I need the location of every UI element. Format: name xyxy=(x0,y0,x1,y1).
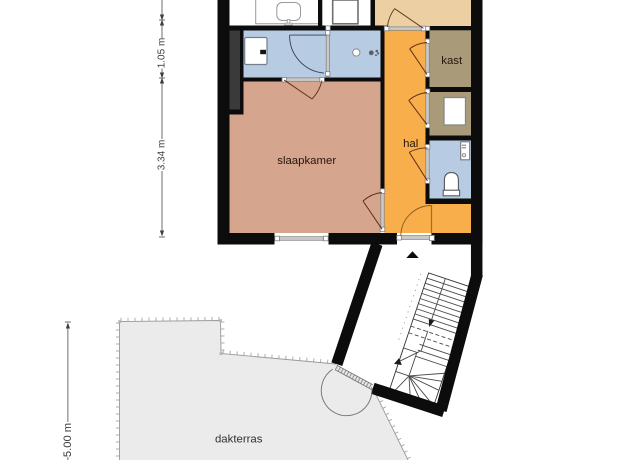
svg-text:5.00 m: 5.00 m xyxy=(62,423,74,457)
svg-text:kast: kast xyxy=(441,55,463,67)
svg-text:slaapkamer: slaapkamer xyxy=(277,155,336,167)
svg-text:3.34 m: 3.34 m xyxy=(157,140,168,171)
svg-text:dakterras: dakterras xyxy=(215,434,263,446)
svg-text:hal: hal xyxy=(403,138,418,150)
svg-text:1.05 m: 1.05 m xyxy=(157,38,168,69)
